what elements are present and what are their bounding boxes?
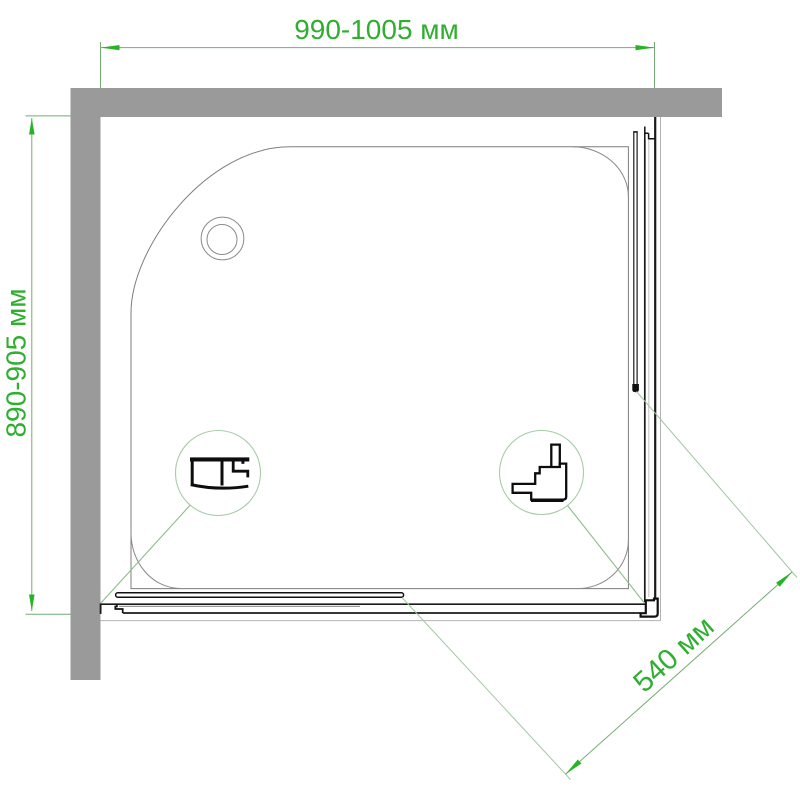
svg-text:990-1005 мм: 990-1005 мм xyxy=(294,14,459,45)
svg-text:890-905 мм: 890-905 мм xyxy=(1,288,32,437)
